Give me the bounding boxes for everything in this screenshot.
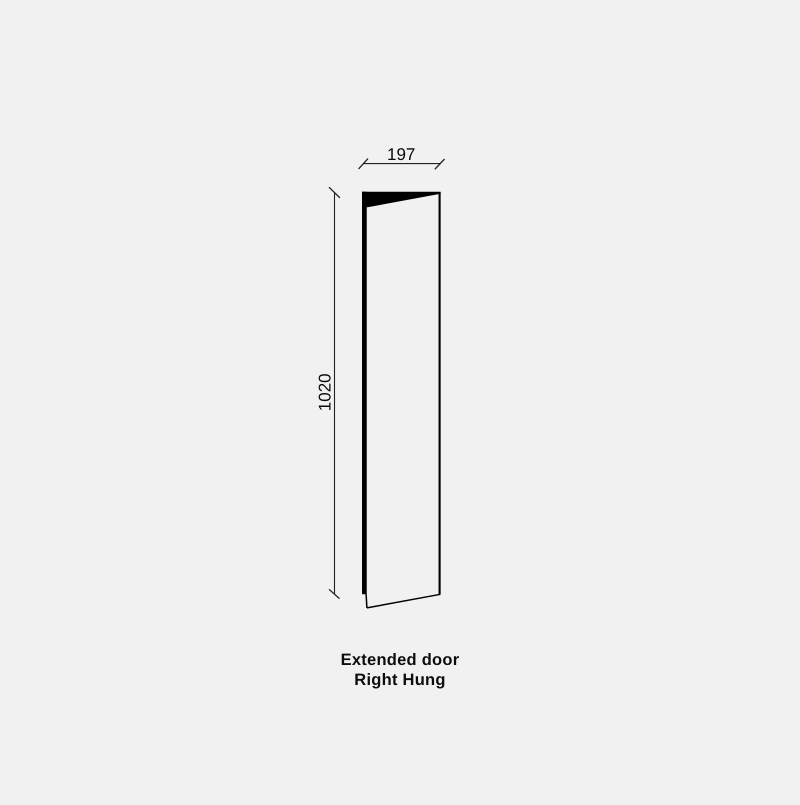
svg-text:Right Hung: Right Hung — [354, 671, 445, 689]
svg-text:1020: 1020 — [315, 373, 334, 411]
svg-text:197: 197 — [387, 145, 415, 164]
svg-text:Extended door: Extended door — [341, 651, 460, 669]
